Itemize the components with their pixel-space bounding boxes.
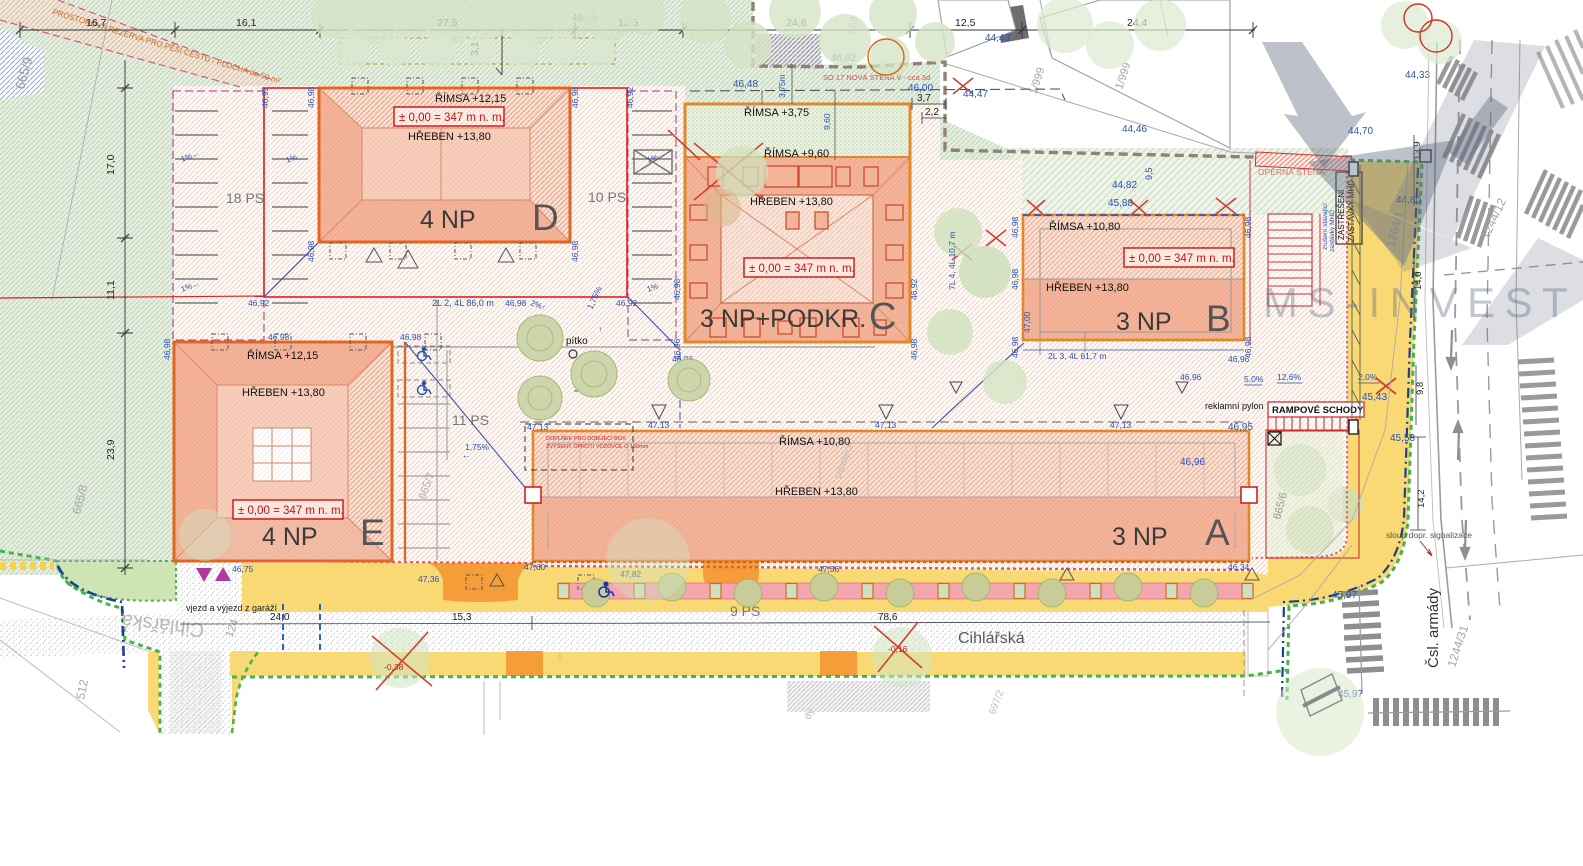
svg-text:47,13: 47,13 bbox=[648, 420, 670, 430]
svg-text:47,36: 47,36 bbox=[418, 574, 440, 584]
svg-text:45,43: 45,43 bbox=[1362, 392, 1387, 403]
svg-text:44,33: 44,33 bbox=[1405, 70, 1430, 81]
svg-text:3,75m: 3,75m bbox=[777, 74, 787, 98]
svg-text:-0,16: -0,16 bbox=[888, 644, 908, 654]
svg-text:2L 2, 4L 86,0 m: 2L 2, 4L 86,0 m bbox=[432, 298, 494, 308]
svg-text:ŘÍMSA +12,15: ŘÍMSA +12,15 bbox=[247, 349, 318, 362]
svg-text:± 0,00 = 347 m n. m.: ± 0,00 = 347 m n. m. bbox=[399, 112, 505, 124]
svg-text:47,13: 47,13 bbox=[875, 420, 897, 430]
svg-text:Cihlářská: Cihlářská bbox=[958, 630, 1025, 647]
svg-text:vjezd a výjezd z garáží: vjezd a výjezd z garáží bbox=[186, 603, 278, 613]
svg-text:12,5: 12,5 bbox=[955, 17, 976, 29]
svg-text:46,92: 46,92 bbox=[625, 86, 635, 108]
svg-text:E: E bbox=[360, 512, 385, 553]
svg-text:sloup dopr. signalizace: sloup dopr. signalizace bbox=[1386, 530, 1472, 540]
svg-text:± 0,00 = 347 m n. m.: ± 0,00 = 347 m n. m. bbox=[238, 505, 344, 517]
svg-text:46,98: 46,98 bbox=[400, 332, 422, 342]
svg-text:9,5: 9,5 bbox=[1144, 167, 1154, 180]
svg-text:18 PS: 18 PS bbox=[226, 190, 264, 206]
svg-text:46,98: 46,98 bbox=[1243, 216, 1253, 238]
svg-text:SO 17 NOVÁ STĚNA V - cca 3d: SO 17 NOVÁ STĚNA V - cca 3d bbox=[823, 73, 930, 82]
svg-text:C: C bbox=[869, 296, 896, 338]
svg-text:←: ← bbox=[462, 450, 471, 460]
svg-text:B: B bbox=[1206, 298, 1231, 339]
svg-text:46,98: 46,98 bbox=[909, 338, 919, 360]
svg-text:46,98: 46,98 bbox=[672, 278, 682, 300]
svg-text:44,46: 44,46 bbox=[1122, 124, 1147, 135]
svg-text:78,6: 78,6 bbox=[878, 612, 898, 623]
svg-text:MS-INVEST: MS-INVEST bbox=[1263, 279, 1577, 326]
svg-text:46,98: 46,98 bbox=[570, 240, 580, 262]
svg-text:46,48: 46,48 bbox=[733, 79, 758, 90]
svg-text:ZVÝŠENÝ OPROTI VOZOVCE O 150mm: ZVÝŠENÝ OPROTI VOZOVCE O 150mm bbox=[546, 443, 649, 450]
svg-text:46,98: 46,98 bbox=[570, 86, 580, 108]
svg-text:pítko: pítko bbox=[566, 336, 588, 347]
svg-text:ŘÍMSA +10,80: ŘÍMSA +10,80 bbox=[779, 435, 850, 448]
svg-text:46,92: 46,92 bbox=[248, 298, 270, 308]
svg-text:11,1: 11,1 bbox=[105, 280, 117, 300]
svg-text:3 NP+PODKR.: 3 NP+PODKR. bbox=[700, 305, 866, 333]
svg-text:47,13: 47,13 bbox=[1110, 420, 1132, 430]
svg-text:47,60: 47,60 bbox=[524, 562, 546, 572]
svg-text:± 0,00 = 347 m n. m.: ± 0,00 = 347 m n. m. bbox=[749, 263, 855, 275]
svg-text:23,9: 23,9 bbox=[105, 439, 117, 460]
svg-text:44,47: 44,47 bbox=[963, 89, 988, 100]
svg-text:± 0,00 = 347 m n. m.: ± 0,00 = 347 m n. m. bbox=[1129, 253, 1235, 265]
svg-text:10 PS: 10 PS bbox=[588, 189, 626, 205]
svg-text:46,92: 46,92 bbox=[260, 86, 270, 108]
svg-text:45,97: 45,97 bbox=[1332, 590, 1357, 601]
svg-text:46,98: 46,98 bbox=[306, 240, 316, 262]
svg-text:17,0: 17,0 bbox=[105, 154, 117, 175]
svg-text:ŘÍMSA +3,75: ŘÍMSA +3,75 bbox=[744, 106, 809, 119]
svg-text:RAMPOVÉ SCHODY: RAMPOVÉ SCHODY bbox=[1272, 405, 1364, 416]
svg-text:46,96: 46,96 bbox=[1180, 372, 1202, 382]
svg-text:16,1: 16,1 bbox=[236, 17, 257, 29]
svg-text:47,13: 47,13 bbox=[527, 422, 549, 432]
svg-text:3,7: 3,7 bbox=[917, 93, 931, 104]
svg-text:9,60: 9,60 bbox=[822, 113, 832, 130]
svg-text:2L 3, 4L 61,7 m: 2L 3, 4L 61,7 m bbox=[1048, 351, 1106, 361]
svg-text:46,96: 46,96 bbox=[1228, 354, 1250, 364]
svg-text:44,43: 44,43 bbox=[985, 33, 1010, 44]
svg-text:2,0%: 2,0% bbox=[1358, 372, 1378, 382]
svg-text:12,6%: 12,6% bbox=[1277, 372, 1302, 382]
svg-text:D: D bbox=[532, 197, 559, 238]
svg-text:9,8: 9,8 bbox=[1415, 382, 1426, 395]
svg-text:46,98: 46,98 bbox=[306, 86, 316, 108]
svg-text:-0,38: -0,38 bbox=[384, 662, 404, 672]
svg-text:46,34: 46,34 bbox=[1228, 562, 1250, 572]
svg-text:46,96: 46,96 bbox=[672, 338, 682, 360]
svg-text:46,96: 46,96 bbox=[1180, 457, 1205, 468]
svg-text:46,98: 46,98 bbox=[505, 298, 527, 308]
svg-text:2,2: 2,2 bbox=[925, 107, 939, 118]
svg-text:45,53: 45,53 bbox=[1390, 433, 1415, 444]
svg-text:24,0: 24,0 bbox=[270, 612, 290, 623]
svg-text:HŘEBEN +13,80: HŘEBEN +13,80 bbox=[408, 130, 491, 143]
svg-text:DOPLŇEK PRO DOBÍJECÍ BOX: DOPLŇEK PRO DOBÍJECÍ BOX bbox=[546, 435, 626, 442]
svg-text:47,56: 47,56 bbox=[818, 564, 840, 574]
svg-text:44,82: 44,82 bbox=[1112, 180, 1137, 191]
svg-text:3 NP: 3 NP bbox=[1116, 308, 1172, 336]
svg-text:16,7: 16,7 bbox=[86, 17, 107, 29]
svg-text:46,92: 46,92 bbox=[909, 278, 919, 300]
svg-text:47,00: 47,00 bbox=[1022, 311, 1032, 333]
svg-text:HŘEBEN +13,80: HŘEBEN +13,80 bbox=[750, 195, 833, 208]
svg-text:zrušení stávající: zrušení stávající bbox=[1322, 203, 1329, 250]
svg-text:↑: ↑ bbox=[598, 324, 602, 334]
svg-text:Čsl. armády: Čsl. armády bbox=[1425, 587, 1442, 668]
svg-text:46,98: 46,98 bbox=[1010, 216, 1020, 238]
svg-text:15,3: 15,3 bbox=[452, 612, 472, 623]
svg-text:46,75: 46,75 bbox=[232, 564, 254, 574]
svg-text:HŘEBEN +13,80: HŘEBEN +13,80 bbox=[1046, 281, 1129, 294]
svg-text:ŘÍMSA +10,80: ŘÍMSA +10,80 bbox=[1049, 220, 1120, 233]
svg-text:reklamní pylon: reklamní pylon bbox=[1205, 401, 1264, 411]
svg-text:11 PS: 11 PS bbox=[452, 412, 489, 428]
svg-text:4 NP: 4 NP bbox=[420, 206, 476, 234]
svg-text:HŘEBEN +13,80: HŘEBEN +13,80 bbox=[242, 386, 325, 399]
svg-text:A: A bbox=[1205, 512, 1230, 553]
svg-text:46,98: 46,98 bbox=[1010, 336, 1020, 358]
svg-text:46,95: 46,95 bbox=[1228, 422, 1253, 433]
svg-text:45,88: 45,88 bbox=[1108, 198, 1133, 209]
svg-text:5,0%: 5,0% bbox=[1244, 374, 1264, 384]
svg-text:ŘÍMSA +9,60: ŘÍMSA +9,60 bbox=[764, 147, 829, 160]
svg-text:zastávky MHD: zastávky MHD bbox=[1329, 210, 1336, 252]
svg-text:3 NP: 3 NP bbox=[1112, 523, 1168, 551]
svg-text:4 NP: 4 NP bbox=[262, 523, 318, 551]
svg-text:46,92: 46,92 bbox=[616, 298, 638, 308]
svg-text:46,98: 46,98 bbox=[162, 338, 172, 360]
svg-text:HŘEBEN +13,80: HŘEBEN +13,80 bbox=[775, 485, 858, 498]
svg-text:46,98: 46,98 bbox=[268, 332, 290, 342]
svg-text:7L 4, 4L 10,7 m: 7L 4, 4L 10,7 m bbox=[947, 232, 957, 290]
svg-text:46,98: 46,98 bbox=[1010, 268, 1020, 290]
